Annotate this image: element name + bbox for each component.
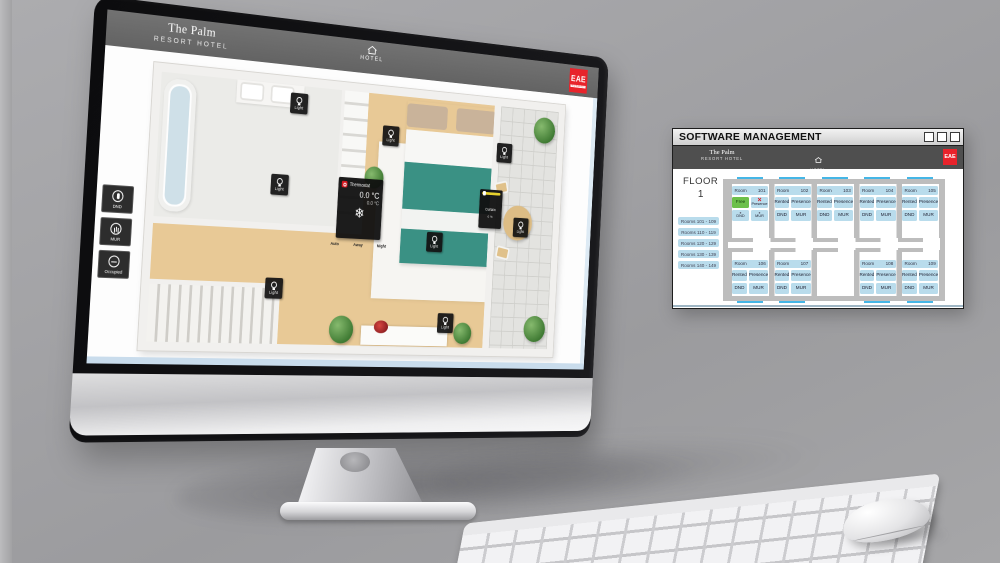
curtain-panel[interactable]: Curtain 0 % <box>478 189 503 229</box>
window-line <box>779 177 805 179</box>
room-label: Room <box>777 188 789 193</box>
presence-button[interactable]: Presence <box>876 197 895 208</box>
window-status-line <box>673 305 963 307</box>
bulb-icon <box>277 178 283 185</box>
nav-hotel-button[interactable]: HOTEL <box>360 44 384 63</box>
light-button-bathroom-top[interactable]: Light <box>290 92 308 114</box>
management-header: The Palm RESORT HOTEL HOTEL EAE <box>673 146 963 169</box>
rented-button[interactable]: Rented <box>902 197 917 208</box>
rented-button[interactable]: Rented <box>817 197 832 208</box>
room-number: 107 <box>801 261 809 266</box>
room-number: 104 <box>886 188 894 193</box>
room-label: Room <box>735 261 747 266</box>
bulb-icon <box>443 317 449 323</box>
light-button-bed-left[interactable]: Light <box>382 125 399 146</box>
room-card-104: Room104RentedPresenceDNDMUR <box>860 186 896 221</box>
dnd-icon <box>112 189 124 202</box>
room-plant <box>328 315 354 343</box>
light-button-bathroom[interactable]: Light <box>270 174 289 196</box>
room-range-list: Rooms 101 - 109Rooms 110 - 119Rooms 120 … <box>678 217 719 269</box>
presence-button[interactable]: Presence <box>791 270 810 281</box>
presence-button[interactable]: Presence <box>876 270 895 281</box>
dnd-button[interactable]: DND <box>902 210 917 221</box>
room-header-button[interactable]: Room104 <box>860 186 896 195</box>
free-button[interactable]: Free <box>732 197 749 208</box>
curtain-title: Curtain <box>481 207 499 213</box>
rented-button[interactable]: Rented <box>732 270 747 281</box>
mode-auto-button[interactable]: Auto <box>330 241 339 246</box>
curtain-slider[interactable] <box>482 192 500 196</box>
window-line <box>822 177 848 179</box>
bed <box>399 100 496 267</box>
bulb-icon <box>518 221 523 227</box>
floor-map: Room101Free×Presence●DND●MURRoom102Rente… <box>723 179 945 301</box>
stand-cable-hole <box>340 452 370 472</box>
eae-logo: EAE TECHNOLOGY <box>569 68 588 94</box>
rented-button[interactable]: Rented <box>902 270 917 281</box>
room-range-button[interactable]: Rooms 110 - 119 <box>678 228 719 236</box>
desk-scene: The Palm RESORT HOTEL HOTEL EAE TECHNOLO… <box>0 0 1000 563</box>
hotel-brand: The Palm RESORT HOTEL <box>154 18 230 51</box>
room-number: 101 <box>758 188 766 193</box>
room-card-101: Room101Free×Presence●DND●MUR <box>732 186 768 221</box>
room-plant <box>453 322 472 344</box>
bulb-icon <box>432 236 438 243</box>
room-card-109: Room109RentedPresenceDNDMUR <box>902 260 938 295</box>
closet-hangers <box>146 279 280 344</box>
room-header-button[interactable]: Room102 <box>775 186 811 195</box>
window-line <box>737 177 763 179</box>
monitor-screen: The Palm RESORT HOTEL HOTEL EAE TECHNOLO… <box>86 9 598 369</box>
room-range-button[interactable]: Rooms 140 - 149 <box>678 261 719 269</box>
eae-logo: EAE <box>943 149 957 165</box>
corridor-wall <box>728 238 940 242</box>
sink <box>240 82 265 102</box>
room-card-107: Room107RentedPresenceDNDMUR <box>775 260 811 295</box>
occupied-button[interactable]: Occupied <box>97 250 130 279</box>
window-line <box>779 301 805 303</box>
bulb-icon <box>388 129 394 136</box>
corridor-opening <box>817 260 853 295</box>
mode-away-button[interactable]: Away <box>353 242 363 247</box>
room-range-button[interactable]: Rooms 130 - 139 <box>678 250 719 258</box>
thermostat-panel[interactable]: Thermostat 0.0 °C 0.0 °C ❄ <box>336 177 384 240</box>
presence-button[interactable]: Presence <box>749 270 768 281</box>
room-header-button[interactable]: Room105 <box>902 186 938 195</box>
room-label: Room <box>820 188 832 193</box>
room-label: Room <box>735 188 747 193</box>
room-number: 102 <box>801 188 809 193</box>
maximize-button[interactable] <box>937 132 947 142</box>
room-card-103: Room103RentedPresenceDNDMUR <box>817 186 853 221</box>
mur-button[interactable]: MUR <box>876 210 895 221</box>
light-button-terrace[interactable]: Light <box>513 218 529 238</box>
minus-icon <box>108 255 120 267</box>
room-label: Room <box>905 261 917 266</box>
pillow <box>407 103 449 130</box>
home-icon <box>814 157 822 163</box>
software-management-window: SOFTWARE MANAGEMENT The Palm RESORT HOTE… <box>672 128 964 309</box>
rented-button[interactable]: Rented <box>775 270 790 281</box>
rented-button[interactable]: Rented <box>860 270 875 281</box>
dnd-button[interactable]: ●DND <box>732 210 749 221</box>
home-icon <box>367 45 378 55</box>
pillow <box>456 108 496 135</box>
room-card-102: Room102RentedPresenceDNDMUR <box>775 186 811 221</box>
room-number: 108 <box>886 261 894 266</box>
dnd-button[interactable]: DND <box>860 210 875 221</box>
room-number: 105 <box>928 188 936 193</box>
room-card-105: Room105RentedPresenceDNDMUR <box>902 186 938 221</box>
presence-button[interactable]: Presence <box>919 197 938 208</box>
dnd-button[interactable]: DND <box>817 210 832 221</box>
window-line <box>907 301 933 303</box>
room-label: Room <box>862 188 874 193</box>
light-button-living[interactable]: Light <box>437 313 454 333</box>
mur-button[interactable]: MUR <box>919 210 938 221</box>
window-line <box>864 177 890 179</box>
mur-button[interactable]: MUR <box>749 283 768 294</box>
floor-indicator: FLOOR 1 <box>683 176 718 200</box>
dnd-button[interactable]: DND <box>902 283 917 294</box>
window-line <box>907 177 933 179</box>
room-range-button[interactable]: Rooms 101 - 109 <box>678 217 719 225</box>
presence-button[interactable]: Presence <box>919 270 938 281</box>
room-header-button[interactable]: Room106 <box>732 260 768 269</box>
eae-logo-subtext: TECHNOLOGY <box>571 84 586 88</box>
mur-button[interactable]: MUR <box>99 217 132 246</box>
room-label: Room <box>905 188 917 193</box>
room-number: 109 <box>928 261 936 266</box>
bulb-icon <box>271 281 277 288</box>
minimize-button[interactable] <box>924 132 934 142</box>
light-button-bedroom[interactable]: Light <box>426 232 443 253</box>
floor-number: 1 <box>683 189 718 200</box>
mur-button[interactable]: MUR <box>919 283 938 294</box>
mur-button[interactable]: MUR <box>834 210 853 221</box>
room-number: 103 <box>843 188 851 193</box>
rooms-row-bottom: Room106RentedPresenceDNDMURRoom107Rented… <box>732 260 938 295</box>
room-range-button[interactable]: Rooms 120 - 129 <box>678 239 719 247</box>
bulb-icon <box>296 97 302 104</box>
dnd-button[interactable]: DND <box>775 283 790 294</box>
corridor-wall <box>728 248 940 252</box>
dnd-button[interactable]: DND <box>775 210 790 221</box>
rented-button[interactable]: Rented <box>860 197 875 208</box>
monitor-bezel: The Palm RESORT HOTEL HOTEL EAE TECHNOLO… <box>69 0 609 443</box>
room-number: 106 <box>758 261 766 266</box>
window-line <box>737 301 763 303</box>
room-header-button[interactable]: Room109 <box>902 260 938 269</box>
mur-button[interactable]: MUR <box>791 283 810 294</box>
room-status-sidebar: DND MUR Occupied <box>97 184 134 279</box>
room-header-button[interactable]: Room108 <box>860 260 896 269</box>
snowflake-icon: ❄ <box>340 205 379 223</box>
wall-corner <box>0 0 12 563</box>
hotel-app-body: DND MUR Occupied <box>87 45 597 364</box>
dnd-button[interactable]: DND <box>732 283 747 294</box>
rented-button[interactable]: Rented <box>775 197 790 208</box>
thermostat-power-icon <box>342 181 348 188</box>
room-card-108: Room108RentedPresenceDNDMUR <box>860 260 896 295</box>
broom-icon <box>110 222 122 234</box>
hotel-brand: The Palm RESORT HOTEL <box>701 149 743 161</box>
light-button-hallway[interactable]: Light <box>264 277 283 298</box>
window-title-bar[interactable]: SOFTWARE MANAGEMENT <box>673 129 963 146</box>
window-title: SOFTWARE MANAGEMENT <box>679 131 921 143</box>
eae-logo-text: EAE <box>571 74 586 85</box>
dnd-button[interactable]: DND <box>860 283 875 294</box>
presence-button[interactable]: Presence <box>834 197 853 208</box>
dnd-button[interactable]: DND <box>101 184 134 214</box>
room-label: Room <box>777 261 789 266</box>
room-header-button[interactable]: Room107 <box>775 260 811 269</box>
room-header-button[interactable]: Room101 <box>732 186 768 195</box>
mur-button[interactable]: ●MUR <box>751 210 768 221</box>
monitor-stand-base <box>280 502 476 520</box>
thermostat-title: Thermostat <box>350 182 370 189</box>
room-label: Room <box>862 261 874 266</box>
room-card-106: Room106RentedPresenceDNDMUR <box>732 260 768 295</box>
presence-button[interactable]: Presence <box>791 197 810 208</box>
room-header-button[interactable]: Room103 <box>817 186 853 195</box>
light-button-bed-right[interactable]: Light <box>496 143 512 163</box>
mode-night-button[interactable]: Night <box>377 244 386 249</box>
close-button[interactable] <box>950 132 960 142</box>
management-body: FLOOR 1 Rooms 101 - 109Rooms 110 - 119Ro… <box>673 169 963 307</box>
curtain-value: 0 % <box>481 214 499 220</box>
rooms-row-top: Room101Free×Presence●DND●MURRoom102Rente… <box>732 186 938 221</box>
room-floorplan: Light Light Light Light <box>137 62 565 357</box>
nav-hotel-label: HOTEL <box>360 54 383 63</box>
monitor-chin <box>69 373 593 435</box>
bulb-icon <box>502 147 507 154</box>
presence-button[interactable]: ×Presence <box>751 197 768 208</box>
imac-monitor: The Palm RESORT HOTEL HOTEL EAE TECHNOLO… <box>69 0 609 443</box>
mur-button[interactable]: MUR <box>876 283 895 294</box>
mur-button[interactable]: MUR <box>791 210 810 221</box>
window-line <box>864 301 890 303</box>
